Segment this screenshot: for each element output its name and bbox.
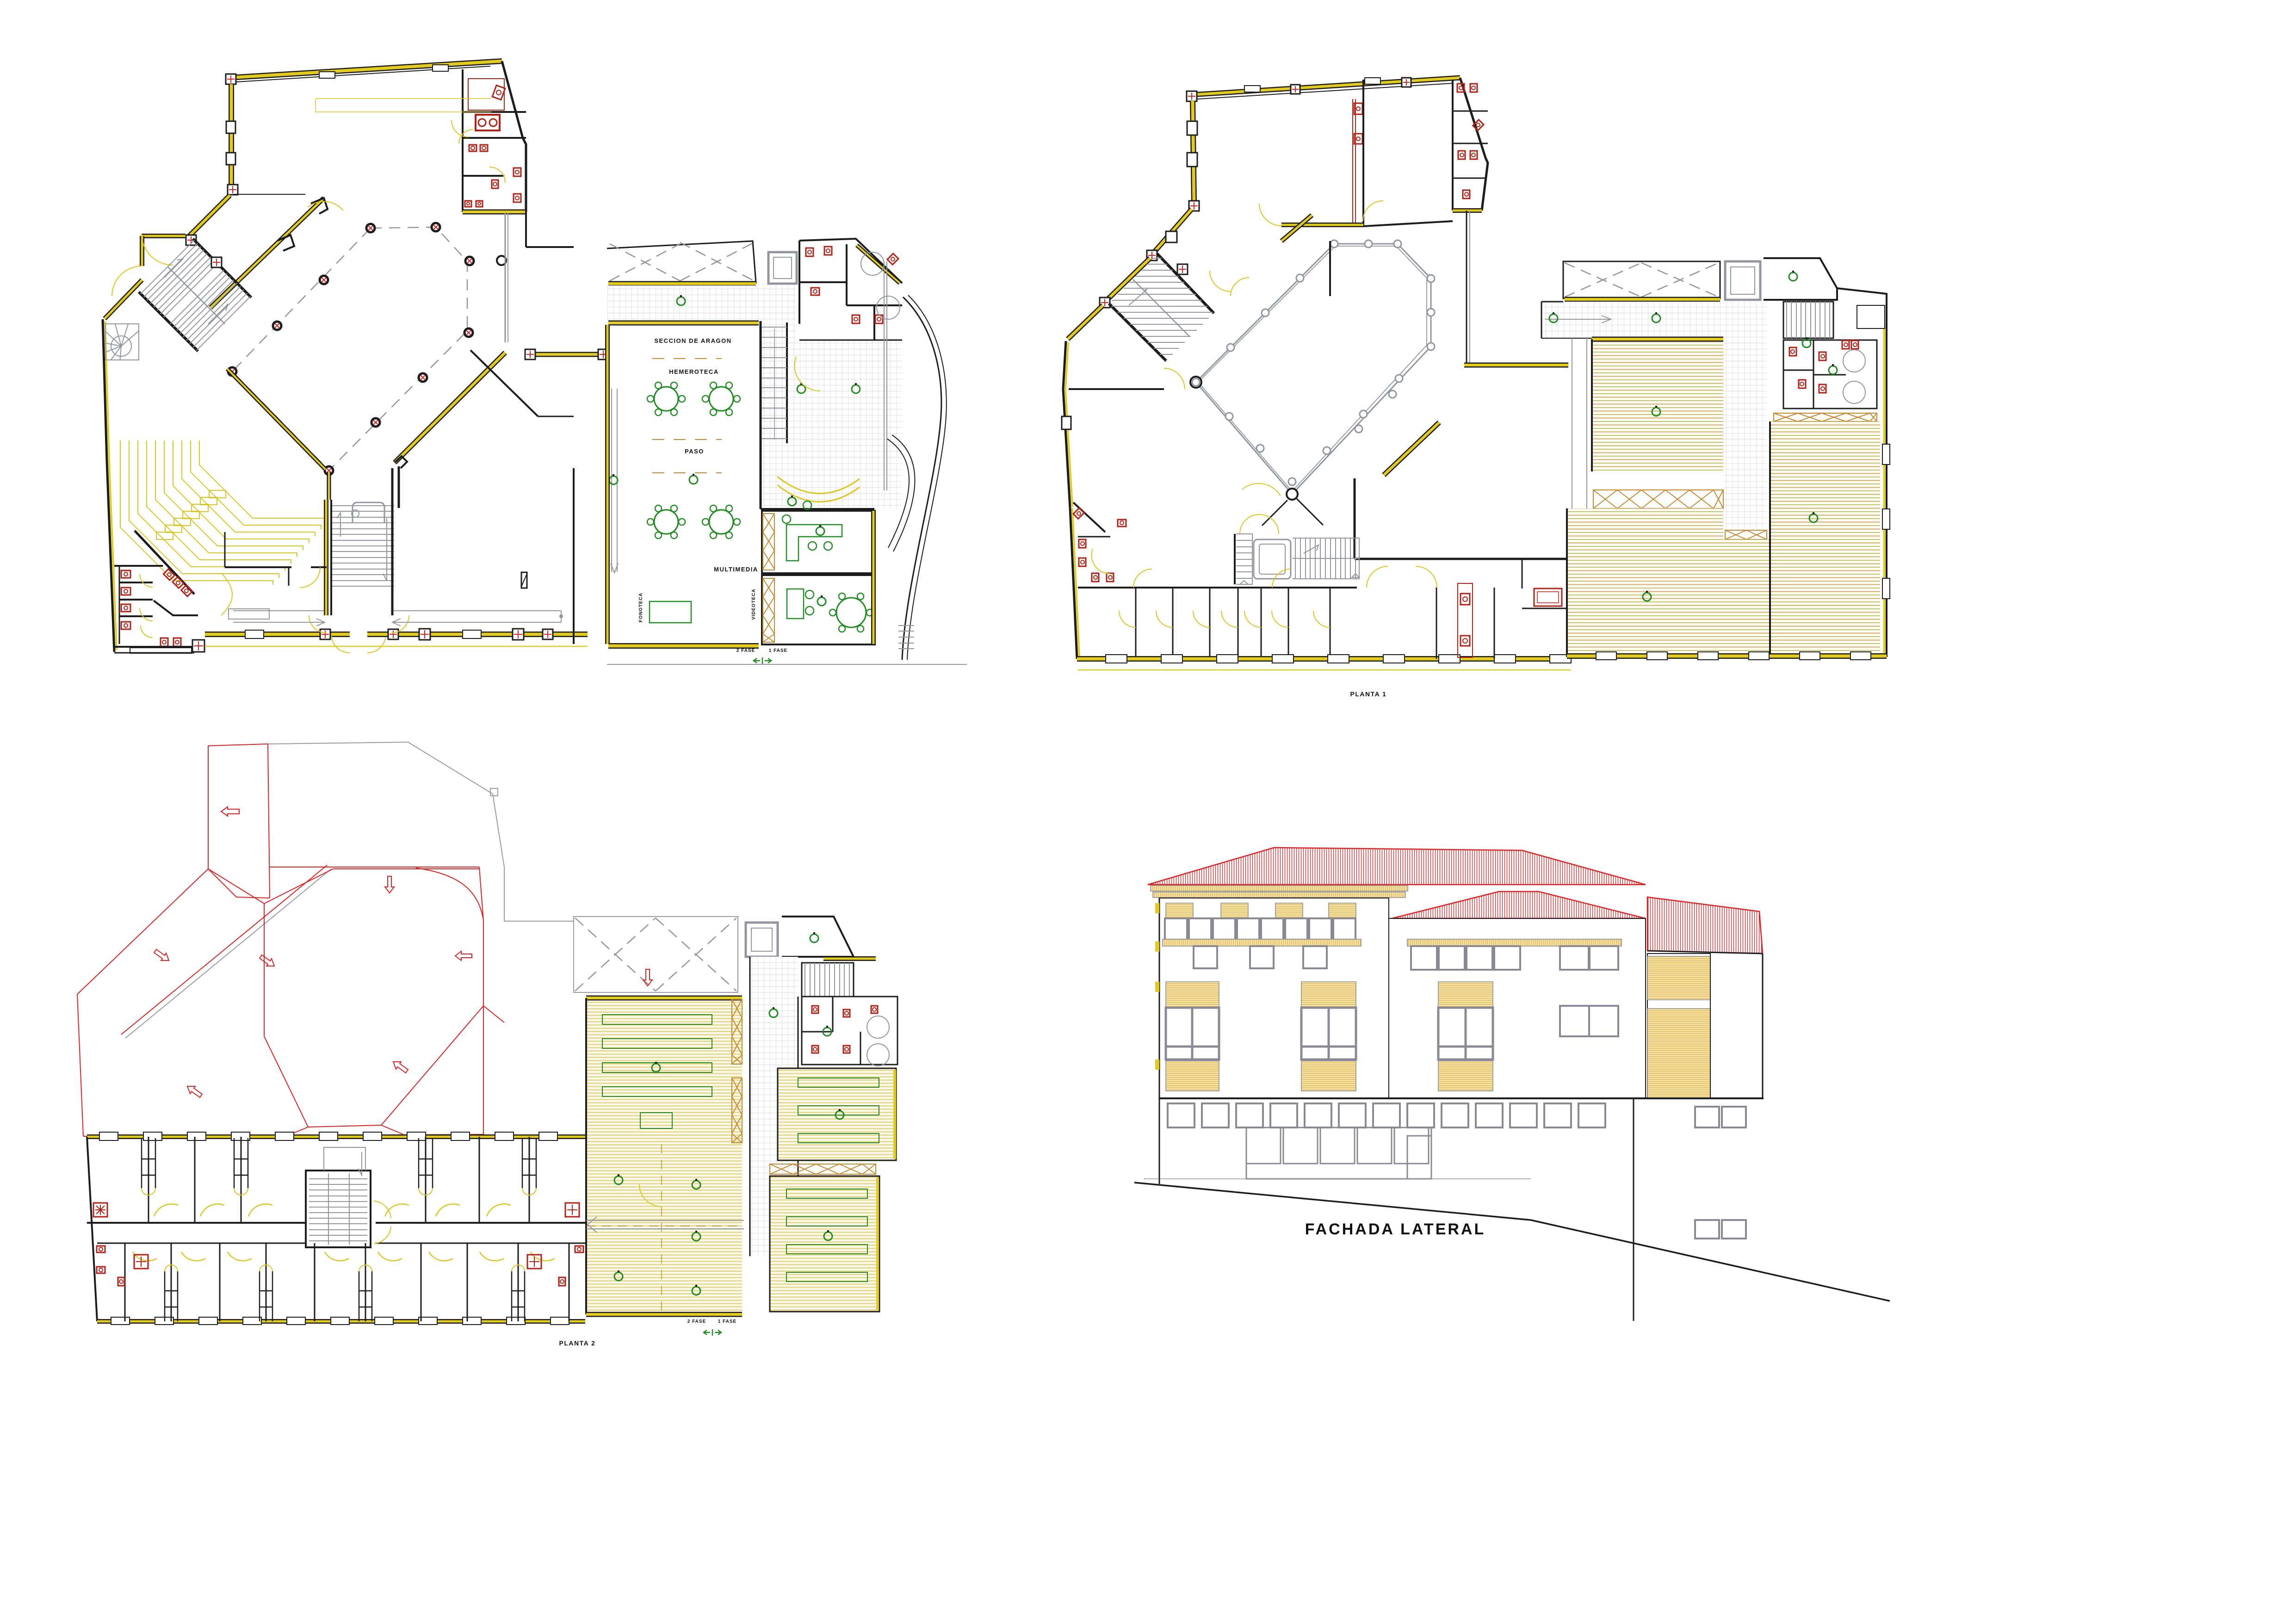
svg-text:HEMEROTECA: HEMEROTECA <box>669 368 718 375</box>
svg-text:1 FASE: 1 FASE <box>769 648 787 653</box>
svg-text:PLANTA 2: PLANTA 2 <box>559 1339 596 1347</box>
svg-text:FACHADA LATERAL: FACHADA LATERAL <box>1305 1220 1486 1238</box>
svg-text:FONOTECA: FONOTECA <box>638 593 644 622</box>
svg-text:VIDEOTECA: VIDEOTECA <box>751 588 756 619</box>
svg-text:MULTIMEDIA: MULTIMEDIA <box>714 566 758 573</box>
svg-text:2 FASE: 2 FASE <box>736 648 755 653</box>
svg-text:PLANTA 1: PLANTA 1 <box>1350 690 1387 698</box>
svg-text:PASO: PASO <box>685 448 704 455</box>
svg-text:1 FASE: 1 FASE <box>718 1319 736 1324</box>
svg-text:2 FASE: 2 FASE <box>687 1319 706 1324</box>
svg-text:SECCION DE ARAGON: SECCION DE ARAGON <box>654 337 731 344</box>
